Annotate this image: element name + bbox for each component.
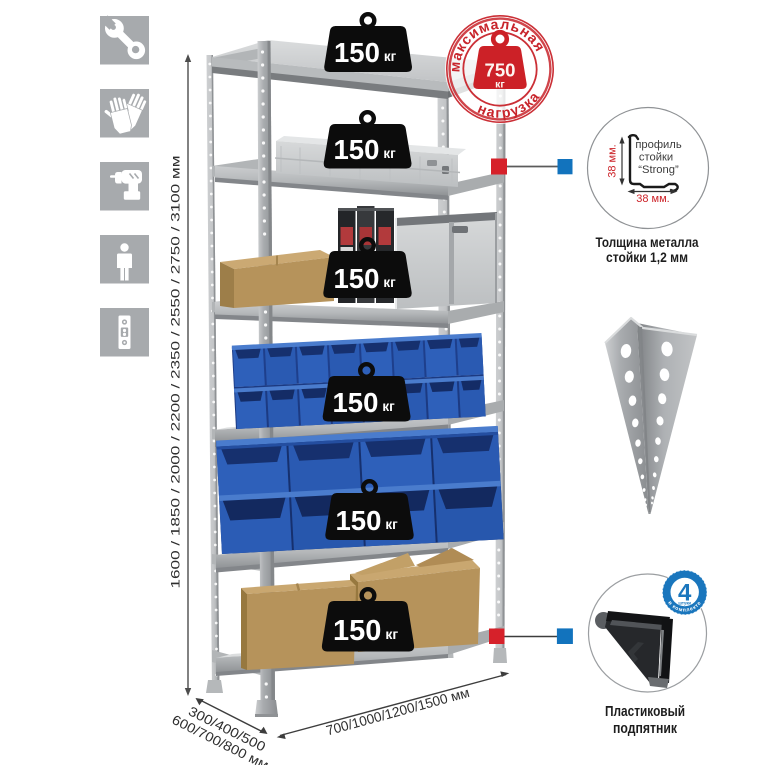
svg-text:подпятник: подпятник <box>613 720 677 737</box>
svg-text:1600 / 1850 / 2000 / 2200 / 23: 1600 / 1850 / 2000 / 2200 / 2350 / 2550 … <box>169 156 183 589</box>
svg-text:стойки 1,2 мм: стойки 1,2 мм <box>606 249 688 265</box>
svg-text:“Strong”: “Strong” <box>638 164 679 176</box>
svg-text:стойки: стойки <box>639 152 673 164</box>
svg-text:750: 750 <box>485 60 516 81</box>
svg-text:штуки: штуки <box>678 600 691 605</box>
svg-text:кг: кг <box>495 79 505 91</box>
svg-text:38 мм.: 38 мм. <box>607 144 619 177</box>
svg-text:профиль: профиль <box>635 139 681 151</box>
svg-text:Пластиковый: Пластиковый <box>605 703 685 720</box>
svg-text:38 мм.: 38 мм. <box>636 193 669 205</box>
svg-text:Толщина металла: Толщина металла <box>596 234 699 250</box>
